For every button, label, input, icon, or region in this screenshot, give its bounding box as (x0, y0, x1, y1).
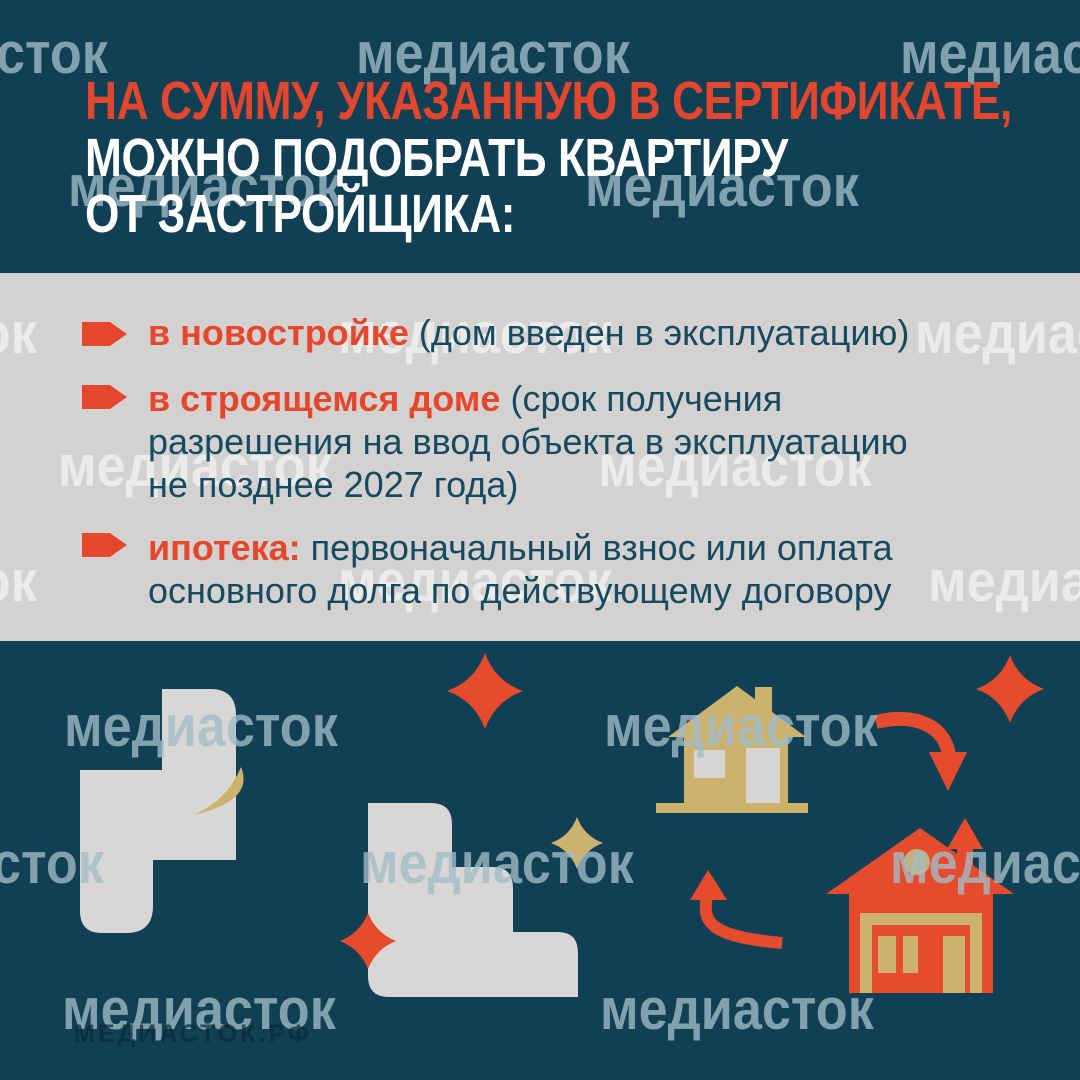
bullet-lead: в строящемся доме (148, 378, 500, 419)
curved-arrow-down-icon (876, 719, 967, 791)
bullet-lead: в новостройке (148, 312, 409, 353)
heading-line-1: НА СУММУ, УКАЗАННУЮ В СЕРТИФИКАТЕ, (85, 74, 1012, 128)
abstract-stairs-shape-large (80, 689, 236, 933)
bullet-lead: ипотека: (148, 527, 301, 568)
bullet-item-mortgage: ипотека: первоначальный взнос или оплата… (148, 526, 1018, 612)
curved-arrow-up-icon (690, 870, 782, 943)
abstract-stairs-shape-small (368, 803, 578, 997)
infographic-poster: сток медиасток медиасток медиасток медиа… (0, 0, 1080, 1080)
window (903, 936, 918, 973)
bullet-rest: (дом введен в эксплуатацию) (419, 312, 910, 353)
sparkle-icon-red-right (976, 655, 1044, 723)
watermark-site-url: МЕДИАСТОК.РФ (74, 1022, 312, 1047)
window (694, 750, 725, 778)
watermark-text: сток (0, 553, 37, 611)
bullet-item-new-building: в новостройке (дом введен в эксплуатацию… (148, 311, 1018, 354)
bullet-tag-icon (82, 533, 127, 557)
bullet-tag-icon (82, 322, 127, 346)
bullet-section: сток медиасток медиасток медиасток медиа… (0, 273, 1080, 641)
sparkle-icon-gold-small (551, 817, 603, 869)
window (878, 936, 896, 973)
illustration (0, 641, 1080, 1080)
red-house (826, 818, 1014, 993)
bullet-item-under-construction: в строящемся доме (срок получения разреш… (148, 377, 1018, 506)
gold-house (656, 686, 808, 813)
bullet-tag-icon (82, 385, 127, 409)
door (746, 748, 780, 803)
heading-line-2: МОЖНО ПОДОБРАТЬ КВАРТИРУ (85, 131, 788, 185)
roof (668, 686, 806, 737)
heading-line-3: ОТ ЗАСТРОЙЩИКА: (85, 187, 515, 241)
up-arrow-head (947, 818, 983, 849)
gable-window (904, 849, 930, 875)
door (943, 936, 965, 993)
house-base (656, 803, 808, 813)
watermark-text: сток (0, 305, 37, 363)
sparkle-icon-red-top (447, 653, 523, 729)
